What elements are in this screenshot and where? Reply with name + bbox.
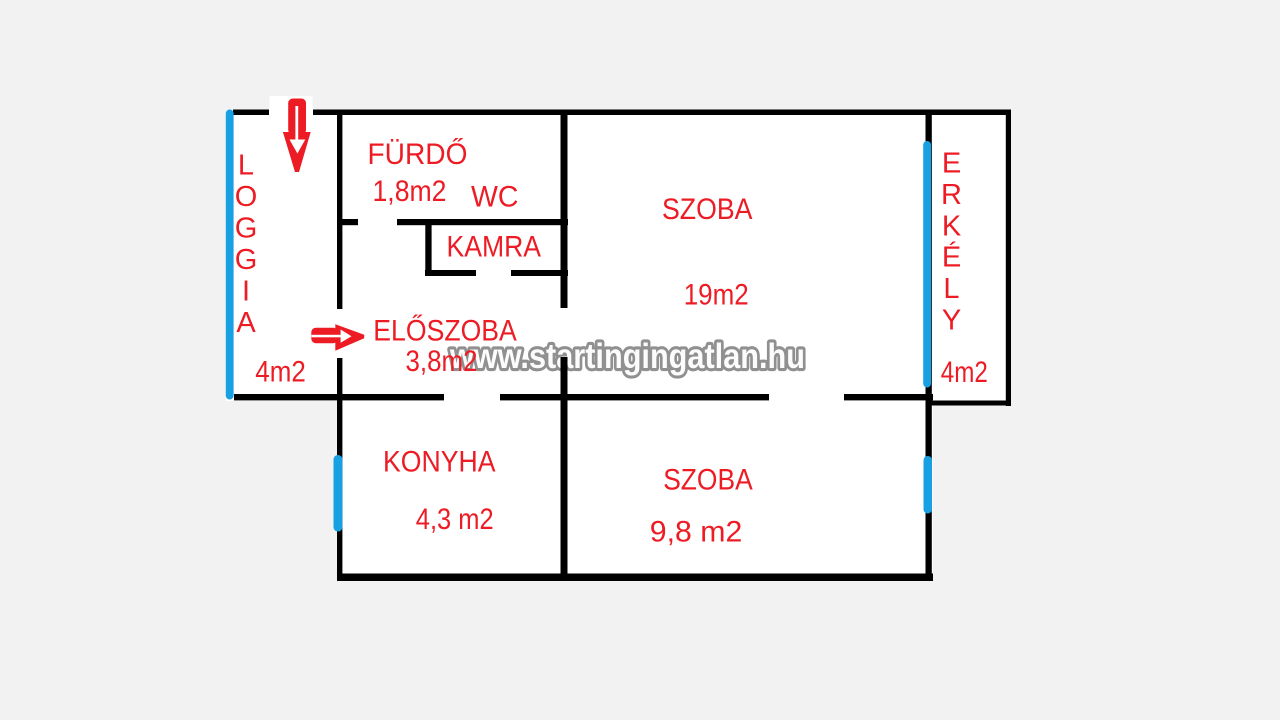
svg-text:4m2: 4m2	[255, 356, 305, 389]
svg-text:9,8 m2: 9,8 m2	[650, 516, 743, 549]
svg-text:A: A	[236, 307, 256, 339]
svg-text:FÜRDŐ: FÜRDŐ	[368, 138, 468, 171]
svg-text:3,8m2: 3,8m2	[406, 345, 478, 378]
svg-text:L: L	[238, 150, 254, 182]
svg-text:E: E	[942, 148, 961, 180]
svg-text:19m2: 19m2	[684, 278, 749, 311]
svg-text:4m2: 4m2	[941, 356, 988, 389]
svg-text:SZOBA: SZOBA	[662, 193, 753, 226]
svg-text:I: I	[242, 276, 250, 308]
svg-text:É: É	[942, 241, 961, 274]
svg-text:WC: WC	[471, 181, 519, 214]
svg-text:KAMRA: KAMRA	[447, 231, 542, 264]
svg-text:G: G	[235, 244, 258, 276]
svg-text:G: G	[235, 213, 258, 245]
svg-text:O: O	[235, 181, 258, 213]
svg-text:SZOBA: SZOBA	[663, 464, 753, 497]
svg-text:R: R	[941, 179, 962, 211]
svg-text:K: K	[942, 210, 962, 242]
svg-text:4,3 m2: 4,3 m2	[416, 503, 494, 536]
svg-text:ELŐSZOBA: ELŐSZOBA	[373, 315, 517, 348]
svg-text:KONYHA: KONYHA	[383, 445, 496, 478]
svg-text:1,8m2: 1,8m2	[373, 175, 447, 208]
svg-text:L: L	[943, 273, 959, 305]
svg-text:Y: Y	[942, 305, 961, 337]
